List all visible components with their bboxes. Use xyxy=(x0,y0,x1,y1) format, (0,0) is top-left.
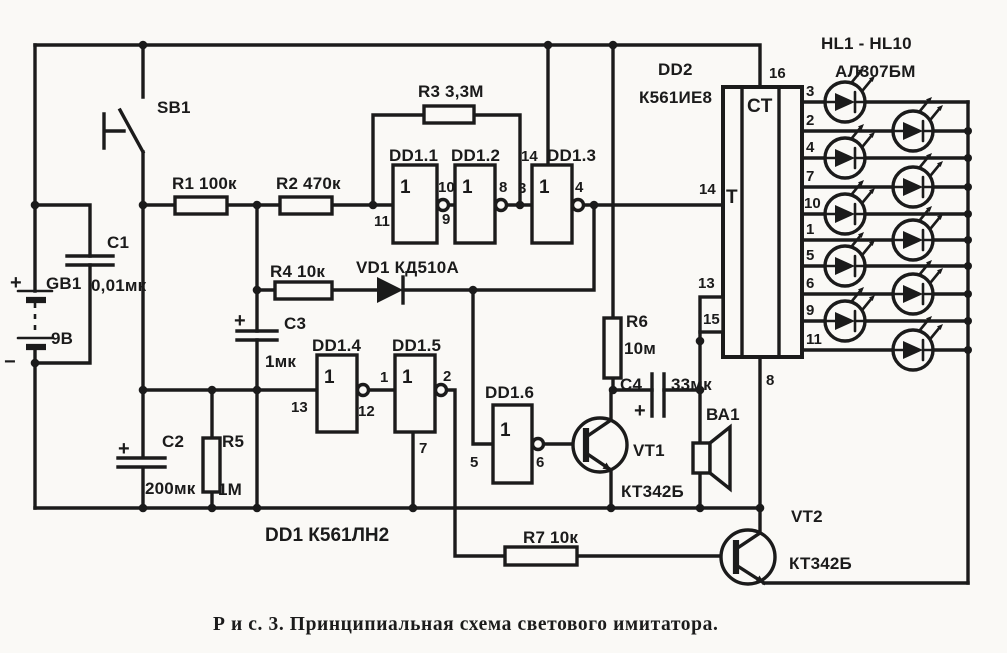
resistor-r1: R1 100к xyxy=(172,174,237,214)
capacitor-c4: С4 33мк + xyxy=(620,374,712,422)
gate-dd1-1: 1 DD1.1 11 10 xyxy=(374,146,455,243)
c1-value: 0,01мк xyxy=(91,276,147,295)
dd2-input-label: T xyxy=(726,187,738,208)
r5-value: 1М xyxy=(218,480,242,499)
c3-plus-sign: + xyxy=(234,310,246,332)
resistor-r4: R4 10к xyxy=(270,262,332,299)
counter-dd2: DD2 К561ИЕ8 CT T 16 14 13 15 8 3 2 4 7 1… xyxy=(639,60,822,389)
gate-name: DD1.4 xyxy=(312,336,362,355)
gate-symbol: 1 xyxy=(462,177,473,198)
pin-2: 2 xyxy=(443,368,451,385)
dd2-out-pin: 9 xyxy=(806,302,814,319)
r1-label: R1 100к xyxy=(172,174,237,193)
r2-label: R2 470к xyxy=(276,174,341,193)
pin-4: 4 xyxy=(575,179,584,196)
resistor-r3: R3 3,3М xyxy=(418,82,484,123)
pin-11: 11 xyxy=(374,213,390,230)
circuit-schematic: + − GB1 9В SB1 С1 0,01мк R1 100к R2 470к… xyxy=(0,0,1007,653)
dd2-out-pin: 5 xyxy=(806,247,814,264)
battery-ref: GB1 xyxy=(46,274,82,293)
gate-dd1-5: 1 DD1.5 1 2 7 xyxy=(380,336,451,457)
figure-caption: Р и с. 3. Принципиальная схема светового… xyxy=(213,614,718,635)
pin-12: 12 xyxy=(358,403,375,420)
dd2-out-pin: 7 xyxy=(806,168,814,185)
gate-dd1-6: 1 DD1.6 5 6 xyxy=(470,383,544,483)
battery-voltage: 9В xyxy=(51,329,73,348)
schematic-figure: + − GB1 9В SB1 С1 0,01мк R1 100к R2 470к… xyxy=(0,0,1007,653)
pin-1: 1 xyxy=(380,369,388,386)
led-hl4 xyxy=(893,153,943,207)
gate-symbol: 1 xyxy=(402,367,413,388)
dd2-pin-15: 15 xyxy=(703,311,720,328)
gate-symbol: 1 xyxy=(324,367,335,388)
switch-label: SB1 xyxy=(157,98,191,117)
vt1-type: КТ342Б xyxy=(621,482,684,501)
c2-value: 200мк xyxy=(145,479,196,498)
vt2-ref: VT2 xyxy=(791,507,823,526)
resistor-r6: R6 10м xyxy=(604,312,656,378)
dd2-part: К561ИЕ8 xyxy=(639,88,712,107)
gate-name: DD1.6 xyxy=(485,383,534,402)
dd2-out-pin: 10 xyxy=(804,195,821,212)
gate-name: DD1.5 xyxy=(392,336,441,355)
c4-value: 33мк xyxy=(671,375,712,394)
pin-6: 6 xyxy=(536,454,544,471)
led-range-label: HL1 - HL10 xyxy=(821,34,912,53)
pin-8: 8 xyxy=(499,179,507,196)
capacitor-c2: + С2 200мк xyxy=(118,432,196,498)
vt2-type: КТ342Б xyxy=(789,554,852,573)
r4-label: R4 10к xyxy=(270,262,325,281)
gate-dd1-4: 1 DD1.4 13 12 xyxy=(291,336,375,432)
dd2-block-label: CT xyxy=(747,96,773,117)
dd2-out-pin: 6 xyxy=(806,275,814,292)
c3-ref: С3 xyxy=(284,314,306,333)
dd2-out-pin: 1 xyxy=(806,221,814,238)
gate-symbol: 1 xyxy=(400,177,411,198)
dd2-out-pin: 4 xyxy=(806,139,815,156)
resistor-r5: R5 1М xyxy=(203,432,244,499)
capacitor-c3: + С3 1мк xyxy=(234,310,306,371)
c4-plus-sign: + xyxy=(634,400,646,422)
r3-label: R3 3,3М xyxy=(418,82,484,101)
dd2-pin-14: 14 xyxy=(699,181,716,198)
dd2-pin-8: 8 xyxy=(766,372,774,389)
pin-5: 5 xyxy=(470,454,478,471)
r6-value: 10м xyxy=(624,339,656,358)
led-part-label: АЛ307БМ xyxy=(835,62,916,81)
r7-label: R7 10к xyxy=(523,528,578,547)
dd2-out-pin: 2 xyxy=(806,112,814,129)
dd2-pin-16: 16 xyxy=(769,65,786,82)
gate-name: DD1.1 xyxy=(389,146,438,165)
resistor-r7: R7 10к xyxy=(505,528,578,565)
battery-gb1: + − GB1 9В xyxy=(4,272,82,373)
gate-symbol: 1 xyxy=(500,420,511,441)
resistor-r2: R2 470к xyxy=(276,174,341,214)
battery-minus-sign: − xyxy=(4,351,16,373)
c1-ref: С1 xyxy=(107,233,129,252)
c3-value: 1мк xyxy=(265,352,296,371)
dd2-out-pin: 11 xyxy=(806,331,822,348)
dd1-chip-label: DD1 К561ЛН2 xyxy=(265,525,389,546)
dd2-out-pin: 3 xyxy=(806,83,814,100)
ba1-label: ВА1 xyxy=(706,405,740,424)
gate-dd1-3: 1 14 DD1.3 3 4 xyxy=(518,146,596,243)
transistor-vt1: VT1 КТ342Б xyxy=(573,418,684,501)
pin-14: 14 xyxy=(521,148,538,165)
pin-7: 7 xyxy=(419,440,427,457)
led-hl8 xyxy=(893,260,943,314)
wire-dd16-input xyxy=(473,290,493,444)
led-hl2 xyxy=(893,97,943,151)
gate-symbol: 1 xyxy=(539,177,550,198)
pin-10: 10 xyxy=(438,179,455,196)
transistor-vt2: VT2 КТ342Б xyxy=(721,507,852,584)
switch-sb1: SB1 xyxy=(104,98,191,152)
gate-name: DD1.3 xyxy=(547,146,596,165)
wire-dd14-dd15 xyxy=(369,390,505,556)
pin-3: 3 xyxy=(518,180,526,197)
vd1-label: VD1 КД510А xyxy=(356,258,459,277)
pin-13: 13 xyxy=(291,399,308,416)
gate-name: DD1.2 xyxy=(451,146,500,165)
c2-ref: С2 xyxy=(162,432,184,451)
diode-vd1: VD1 КД510А xyxy=(356,258,459,303)
vt1-ref: VT1 xyxy=(633,441,665,460)
dd2-pin-13: 13 xyxy=(698,275,715,292)
led-hl10 xyxy=(893,316,943,370)
r6-ref: R6 xyxy=(626,312,648,331)
c4-ref: С4 xyxy=(620,375,642,394)
pin-9: 9 xyxy=(442,211,450,228)
r5-ref: R5 xyxy=(222,432,244,451)
dd2-ref: DD2 xyxy=(658,60,693,79)
